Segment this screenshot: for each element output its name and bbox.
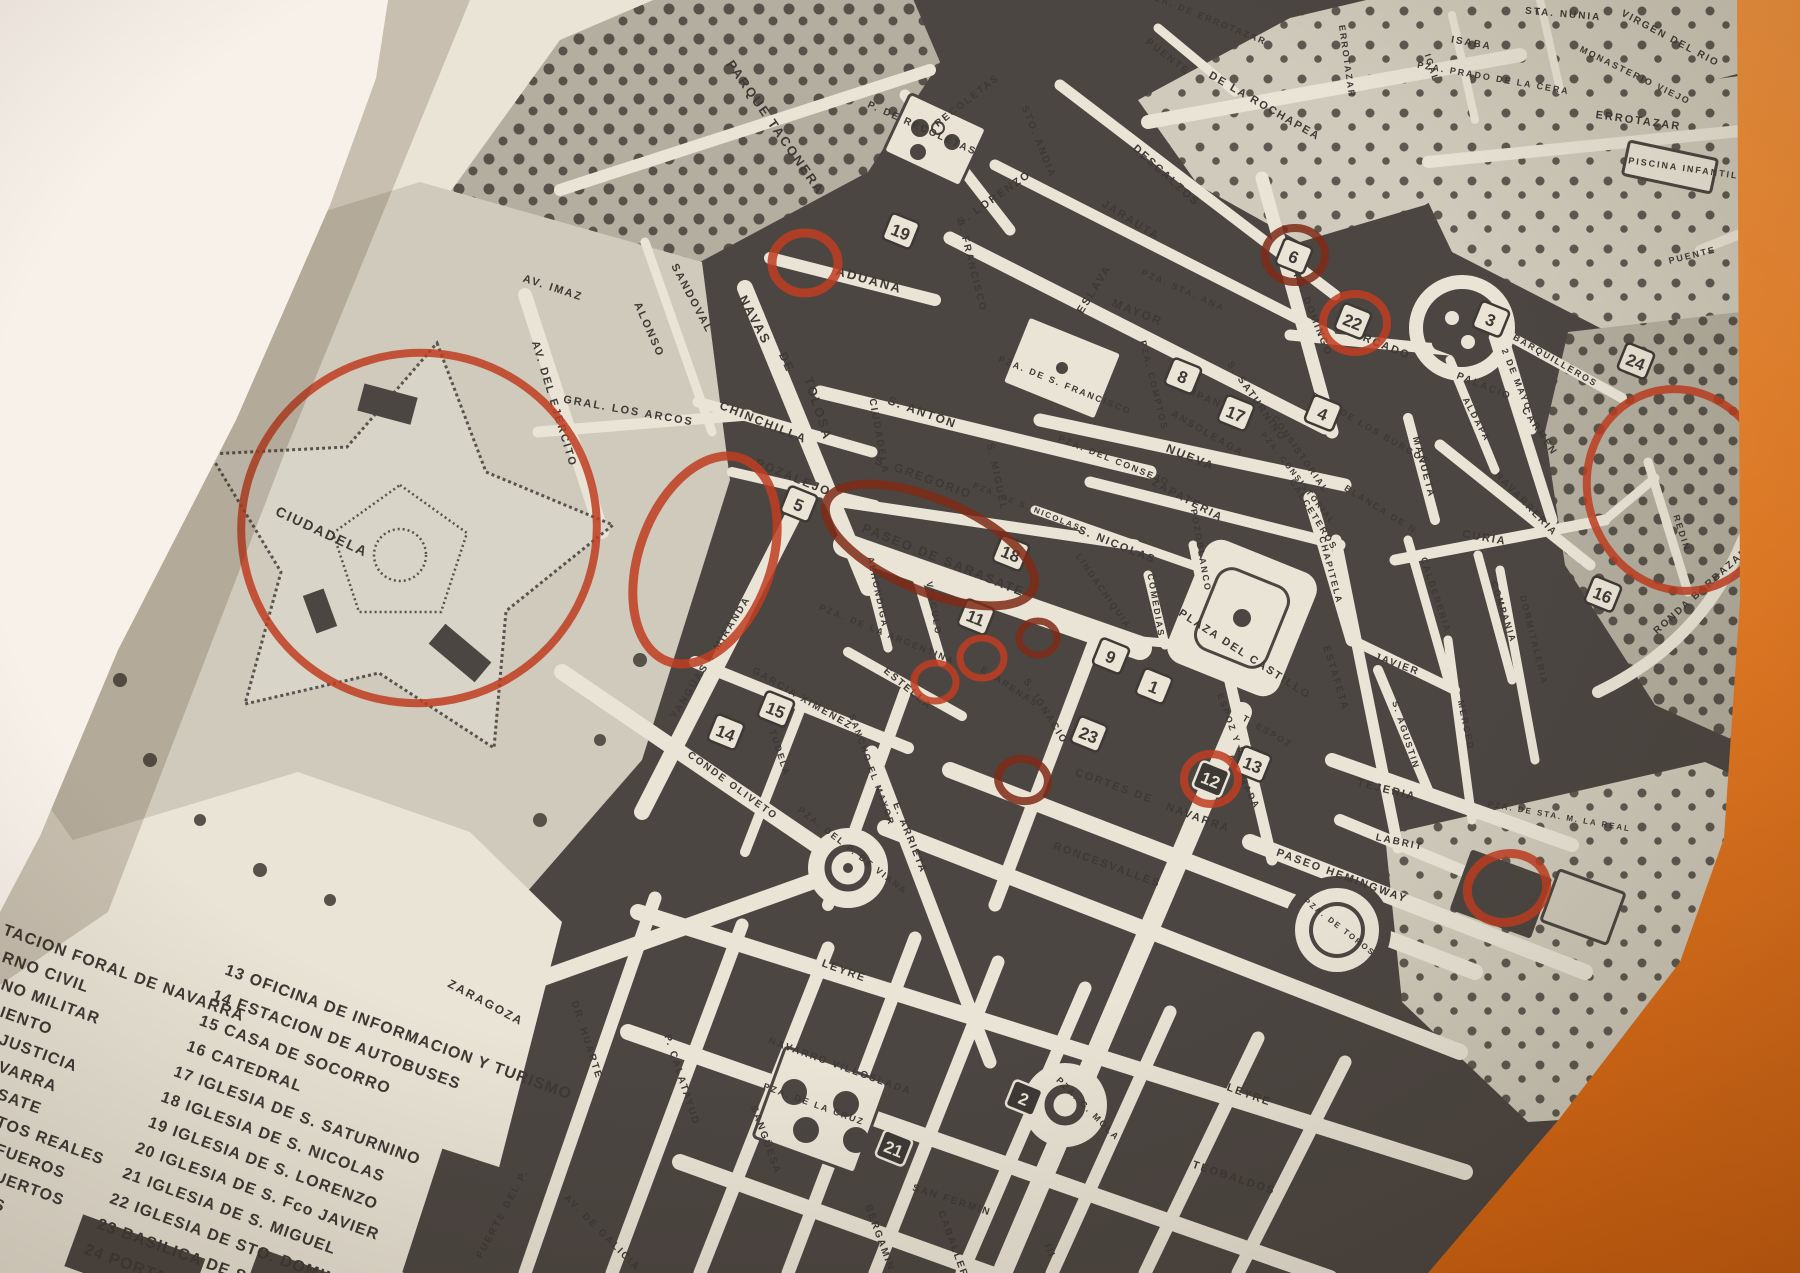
book-photo: PARQUE TACONERAADUANANAVASDETOLOSASANDOV…	[0, 0, 1800, 1273]
